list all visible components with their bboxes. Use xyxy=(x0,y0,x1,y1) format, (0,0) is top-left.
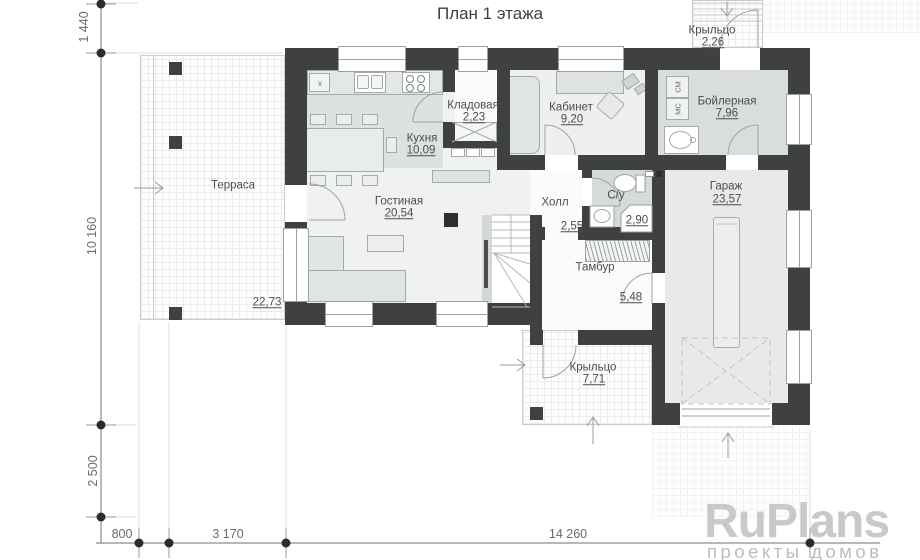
room-area-vestibule: 5,48 xyxy=(620,292,642,304)
room-label-bathroom: С/у xyxy=(607,190,624,202)
room-area-living: 20,54 xyxy=(385,208,414,220)
utility-sink-basin xyxy=(669,131,692,149)
hall-closet xyxy=(481,148,495,157)
garage-east-window-2 xyxy=(786,330,812,384)
garage-door-opening xyxy=(680,403,772,425)
pantry-window xyxy=(458,46,488,72)
room-area-porch-north: 2,26 xyxy=(702,37,724,49)
chair xyxy=(336,114,352,125)
dim-label-14260: 14 260 xyxy=(549,527,587,541)
wall-segment xyxy=(285,303,542,325)
room-area-terrace: 22,73 xyxy=(253,297,282,309)
dim-label-2500: 2 500 xyxy=(86,455,100,486)
stairs-handrail xyxy=(484,240,488,288)
coffee-table xyxy=(367,235,404,252)
wall-segment xyxy=(530,227,545,240)
room-label-hall: Холл xyxy=(541,197,568,209)
watermark-tagline: проекты домов xyxy=(707,541,883,560)
wall-segment xyxy=(497,70,510,170)
chair xyxy=(310,175,326,186)
floor-plan-canvas: План 1 этажа x СМ МС xyxy=(0,0,920,560)
dim-label-800: 800 xyxy=(112,527,133,541)
room-area-hall: 2,55 xyxy=(561,221,583,233)
wall-segment xyxy=(652,303,665,403)
corner-sofa-horizontal xyxy=(308,270,406,302)
wall-segment xyxy=(443,70,455,92)
dim-label-10160: 10 160 xyxy=(85,217,99,255)
room-label-terrace: Терраса xyxy=(211,180,255,192)
living-south-window-1 xyxy=(325,301,373,327)
wall-segment xyxy=(443,141,510,148)
top-right-pavement xyxy=(763,0,920,33)
chair xyxy=(362,175,378,186)
washer-label: СМ xyxy=(674,81,683,93)
burner xyxy=(406,75,414,83)
room-area-office: 9,20 xyxy=(561,114,583,126)
room-label-porch-south: Крыльцо xyxy=(570,362,617,374)
doormat xyxy=(585,240,650,262)
wall-segment xyxy=(652,155,726,170)
room-label-porch-north: Крыльцо xyxy=(689,25,736,37)
room-area-garage: 23,57 xyxy=(713,194,742,206)
terrace-post xyxy=(169,136,182,149)
chair xyxy=(386,137,397,153)
office-window xyxy=(558,46,624,72)
burner xyxy=(417,84,425,92)
dining-table xyxy=(306,128,384,172)
living-south-window-2 xyxy=(436,301,488,327)
sink-bowl-left xyxy=(357,75,369,89)
sink-bowl-right xyxy=(371,75,383,89)
chair xyxy=(310,114,326,125)
hall-closet xyxy=(451,148,465,157)
wall-segment xyxy=(652,170,665,273)
wall-segment xyxy=(582,170,592,178)
hall-closet xyxy=(466,148,480,157)
room-label-vestibule: Тамбур xyxy=(575,262,614,274)
kitchen-window xyxy=(338,46,406,72)
boiler-entry-opening xyxy=(720,48,760,70)
garage-east-window-1 xyxy=(786,210,812,268)
room-area-bathroom: 2,90 xyxy=(626,215,648,227)
desk xyxy=(556,71,624,94)
room-label-pantry: Кладовая xyxy=(447,100,499,112)
chair xyxy=(362,114,378,125)
wall-segment xyxy=(758,155,788,170)
boiler-east-window xyxy=(786,94,812,145)
terrace-door-opening xyxy=(285,185,307,222)
kitchen-hood-label: x xyxy=(318,78,322,88)
living-west-window xyxy=(283,228,309,302)
chair xyxy=(336,175,352,186)
dim-label-1440: 1 440 xyxy=(77,11,91,42)
room-label-garage: Гараж xyxy=(710,181,742,193)
inspection-pit xyxy=(713,217,740,348)
burner xyxy=(417,75,425,83)
vent-duct xyxy=(645,171,654,177)
terrace-inner-line xyxy=(153,55,154,320)
wall-segment xyxy=(578,155,652,170)
page-title: План 1 этажа xyxy=(437,4,543,24)
room-area-pantry: 2,23 xyxy=(463,112,485,124)
room-area-boiler: 7,96 xyxy=(716,108,738,120)
room-label-office: Кабинет xyxy=(549,102,593,114)
burner xyxy=(406,84,414,92)
wall-segment xyxy=(510,155,545,170)
fireplace xyxy=(444,213,458,227)
dim-label-3170: 3 170 xyxy=(212,527,243,541)
pantry-shelf xyxy=(452,122,497,142)
room-area-porch-south: 7,71 xyxy=(583,374,605,386)
dryer-label: МС xyxy=(674,103,683,115)
terrace-post xyxy=(169,62,182,75)
room-label-living: Гостиная xyxy=(375,196,423,208)
wall-segment xyxy=(530,330,543,345)
stairs-body xyxy=(492,215,530,307)
vent-duct xyxy=(656,171,662,177)
room-label-boiler: Бойлерная xyxy=(698,96,757,108)
terrace-post xyxy=(169,307,182,320)
wall-segment xyxy=(443,122,455,142)
room-label-kitchen: Кухня xyxy=(407,133,438,145)
tv-cabinet xyxy=(432,170,490,183)
room-area-kitchen: 10,09 xyxy=(407,145,436,157)
porch-post xyxy=(530,407,543,420)
